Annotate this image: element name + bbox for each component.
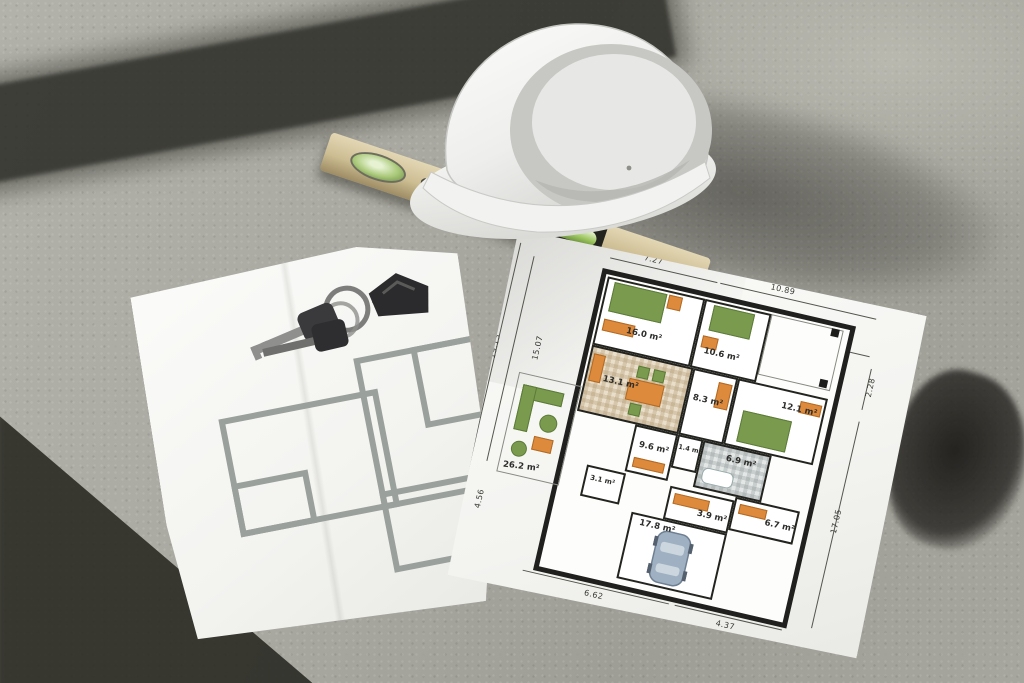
shelf: [738, 504, 768, 520]
room-label: 9.6 m²: [638, 440, 670, 457]
dim-label: 4.37: [715, 619, 736, 632]
room-label: 13.1 m²: [602, 374, 640, 392]
nightstand: [666, 295, 683, 312]
bush: [509, 439, 528, 458]
room-label: 6.9 m²: [725, 454, 757, 471]
level-round-vial: [347, 146, 410, 189]
porch: [758, 314, 844, 391]
house-fob: [366, 268, 432, 321]
room-label: 6.7 m²: [763, 518, 795, 535]
hard-hat: [405, 10, 725, 248]
bathtub: [700, 467, 735, 490]
bench: [632, 457, 665, 474]
sketch-paper: [128, 231, 512, 648]
room-label: 16.0 m²: [625, 326, 663, 344]
chair: [636, 366, 650, 380]
room-storage: 6.7 m²: [728, 497, 800, 545]
room-vestibule: 3.1 m²: [580, 464, 626, 504]
dim-label: 6.62: [583, 588, 604, 601]
dim-label: 4.56: [473, 488, 486, 509]
chair: [652, 369, 666, 383]
bed: [736, 410, 792, 452]
room-label: 3.9 m²: [696, 509, 728, 526]
hedge: [513, 384, 537, 432]
bush: [537, 413, 559, 435]
helmet-vent-dot: [627, 166, 632, 171]
car: [645, 528, 696, 590]
bed: [708, 305, 755, 340]
dim-label: 2.28: [864, 377, 877, 398]
dim-label: 17.05: [829, 508, 843, 534]
bed: [608, 282, 667, 323]
cabinet: [672, 493, 710, 512]
plan-paper: 7.27 10.89 5.62 2.28 17.05 19.13 15.07 4…: [435, 221, 935, 669]
helmet-inner-shell: [532, 54, 696, 190]
construction-flatlay-photo: 7.27 10.89 5.62 2.28 17.05 19.13 15.07 4…: [0, 0, 1024, 683]
paver: [531, 436, 554, 454]
room-label: 26.2 m²: [502, 460, 539, 474]
room-label: 10.6 m²: [703, 346, 741, 364]
chair: [627, 403, 641, 417]
room-label: 1.4 m²: [678, 443, 703, 456]
room-label: 3.1 m²: [589, 474, 615, 487]
room-hall: 9.6 m²: [625, 424, 679, 481]
